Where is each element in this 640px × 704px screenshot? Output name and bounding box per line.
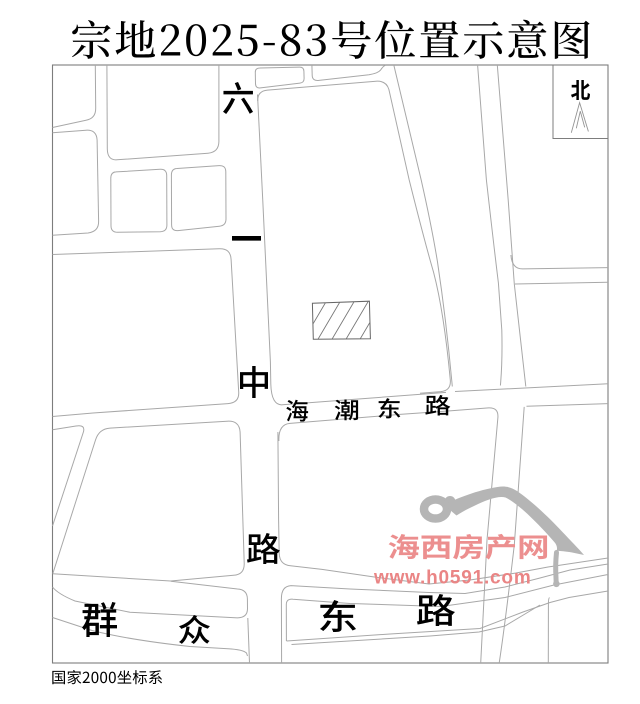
svg-text:www.h0591.com: www.h0591.com (373, 568, 532, 589)
